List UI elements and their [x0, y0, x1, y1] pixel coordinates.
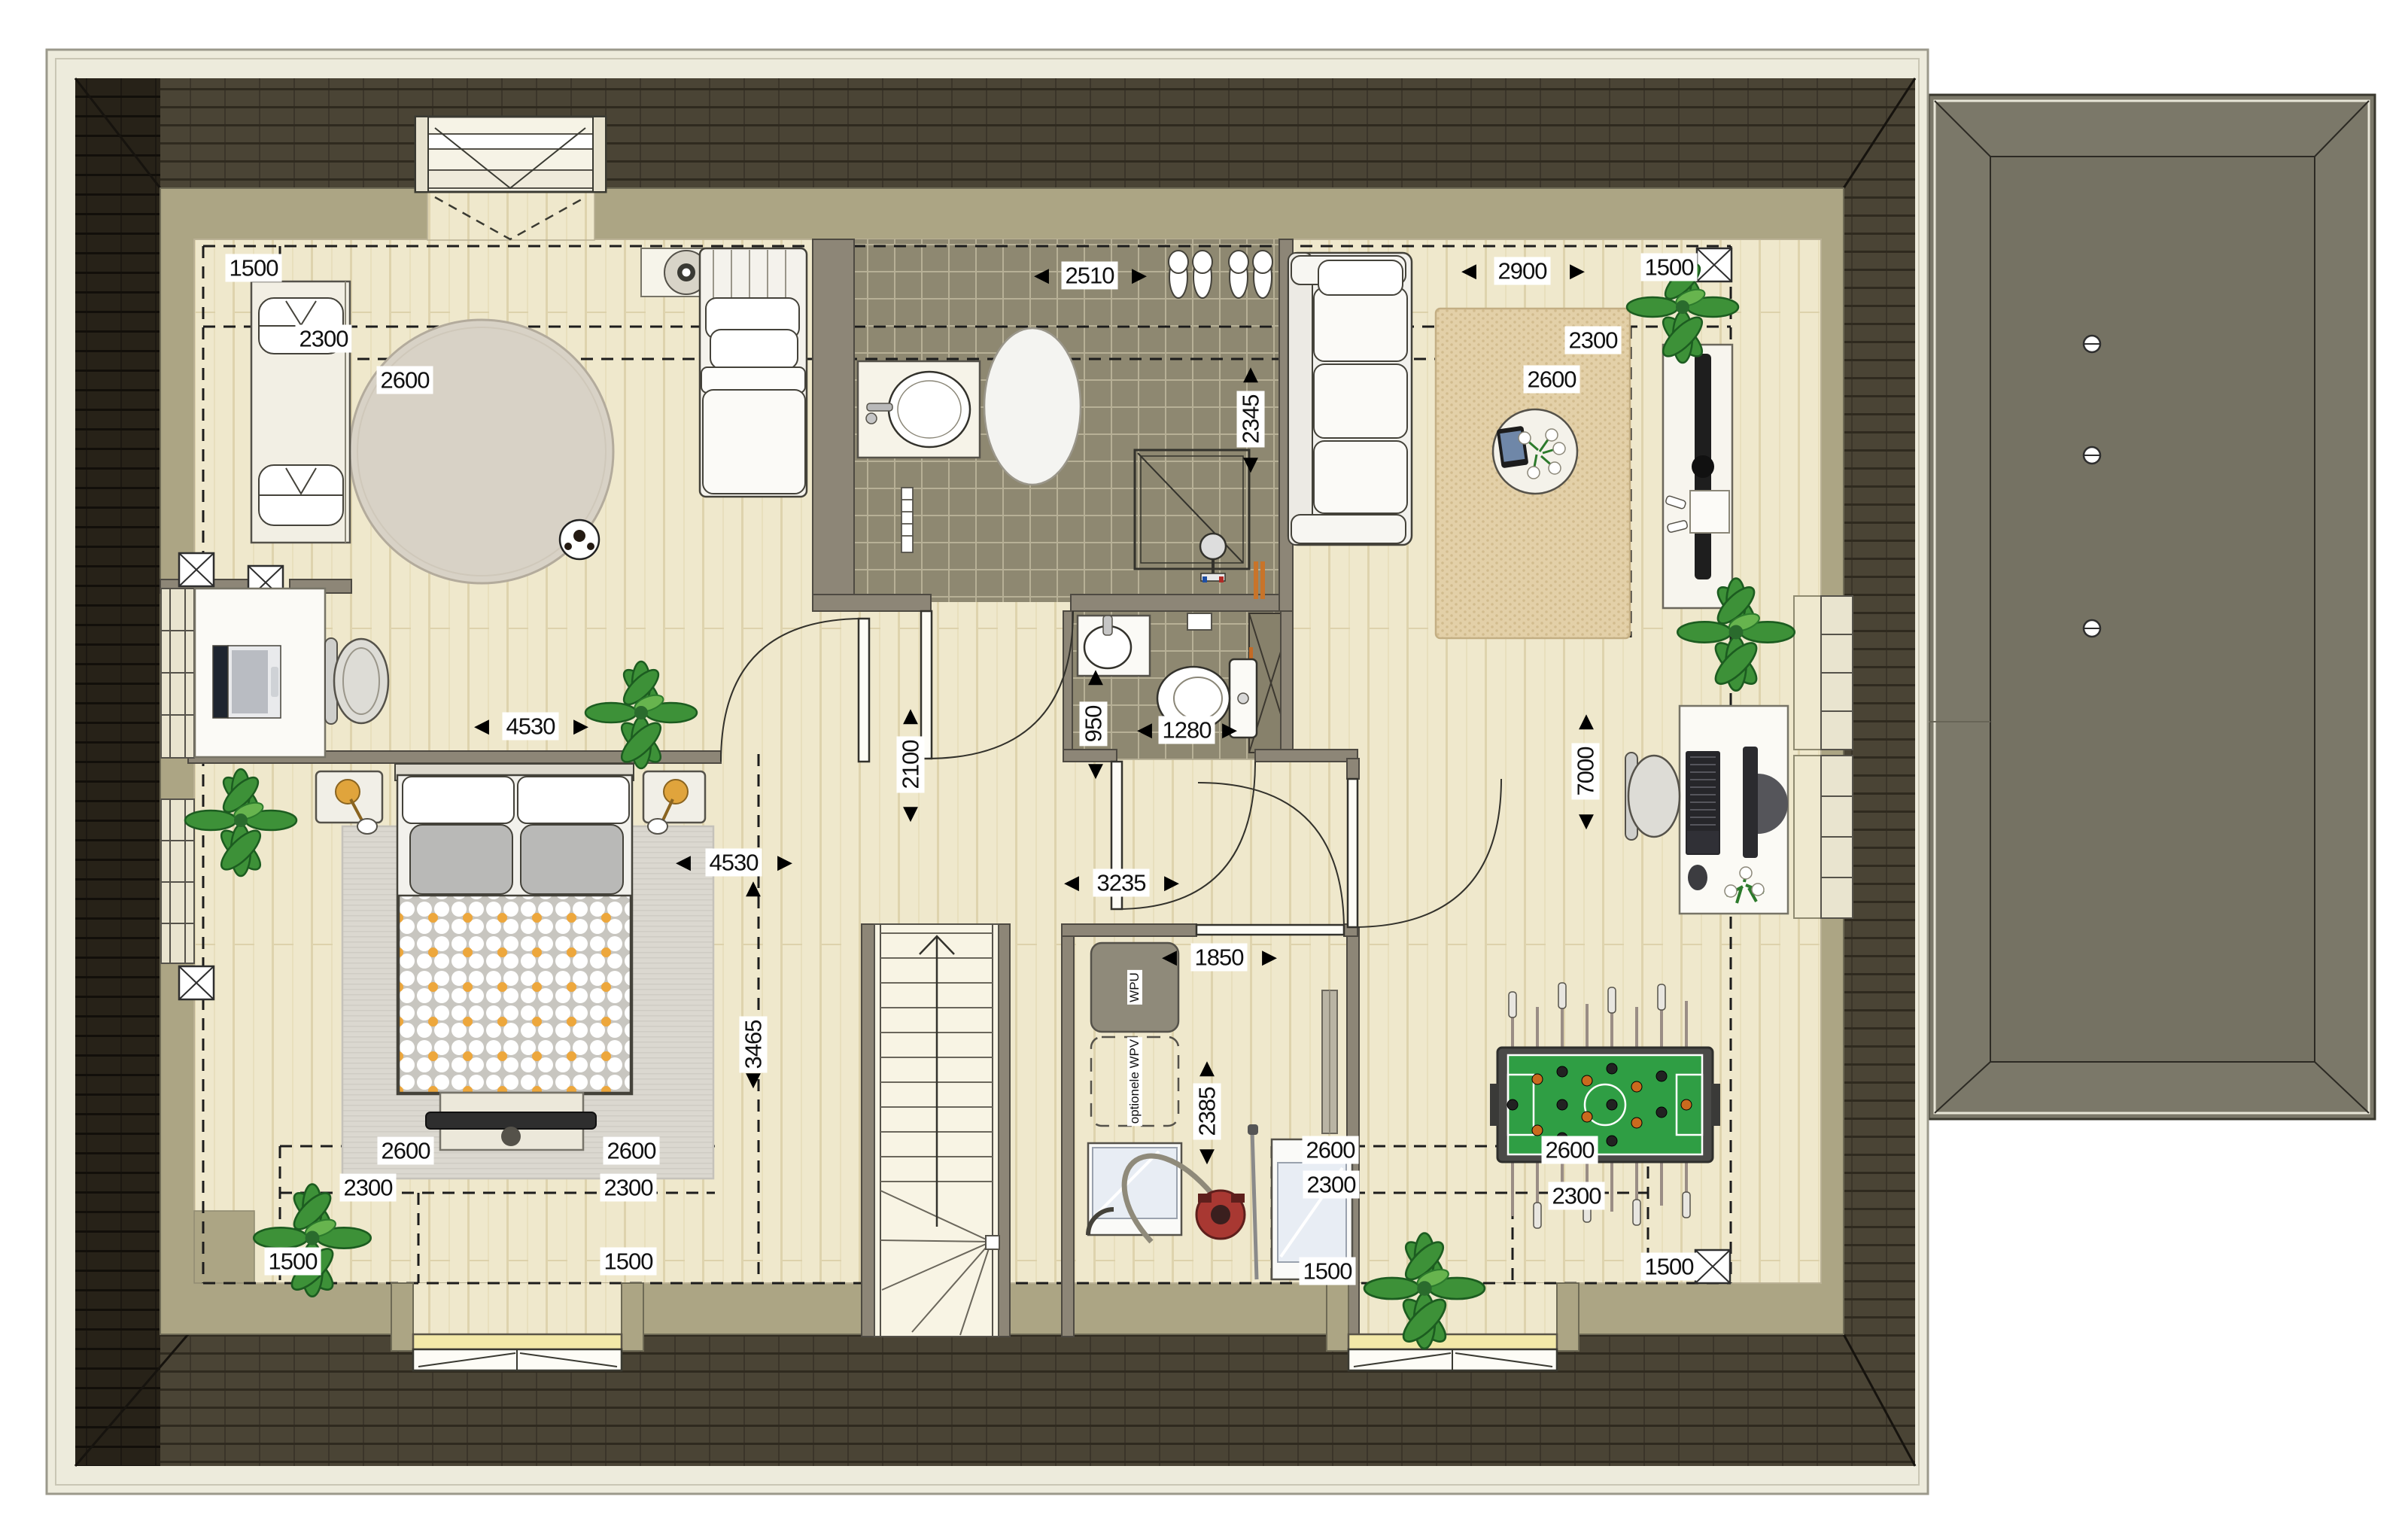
tv-bench	[426, 1093, 596, 1150]
tv-cabinet	[1663, 345, 1732, 608]
soccer-ball	[560, 520, 599, 559]
left-window[interactable]	[161, 589, 194, 758]
double-bed	[395, 764, 634, 1094]
office-chair-seat[interactable]	[1628, 756, 1680, 837]
hanging-clothes-icon	[259, 465, 343, 525]
laptop	[213, 646, 281, 718]
towel-ladder	[901, 488, 913, 552]
floor-plan-drawing	[0, 0, 2408, 1539]
roof-vent-icon	[2084, 447, 2100, 464]
roof-band-left	[75, 78, 160, 1466]
hanging-clothes-icon	[259, 298, 343, 354]
bathroom-sink	[858, 361, 980, 458]
desk-chair	[325, 638, 388, 724]
tv	[426, 1112, 596, 1129]
side-table	[1493, 409, 1577, 494]
roof-vent-icon	[2084, 620, 2100, 637]
staircase[interactable]	[874, 924, 999, 1337]
mouse[interactable]	[1688, 865, 1707, 890]
floor-plan-canvas: 1500230026002510234529001500230026004530…	[0, 0, 2408, 1539]
bath-mat	[984, 328, 1081, 485]
single-bed	[700, 248, 807, 497]
right-window[interactable]	[1794, 596, 1853, 750]
right-window[interactable]	[1794, 756, 1853, 918]
wc-sink	[1078, 616, 1150, 676]
dryer[interactable]	[1272, 1139, 1352, 1279]
sofa	[1288, 253, 1412, 545]
keyboard[interactable]	[1686, 751, 1720, 855]
toilet-roll-holder	[1187, 613, 1212, 630]
wardrobe	[251, 281, 350, 543]
flat-roof-annex	[1929, 95, 2375, 1119]
wpu-unit	[1091, 943, 1178, 1032]
roof-vent-icon	[2084, 336, 2100, 352]
